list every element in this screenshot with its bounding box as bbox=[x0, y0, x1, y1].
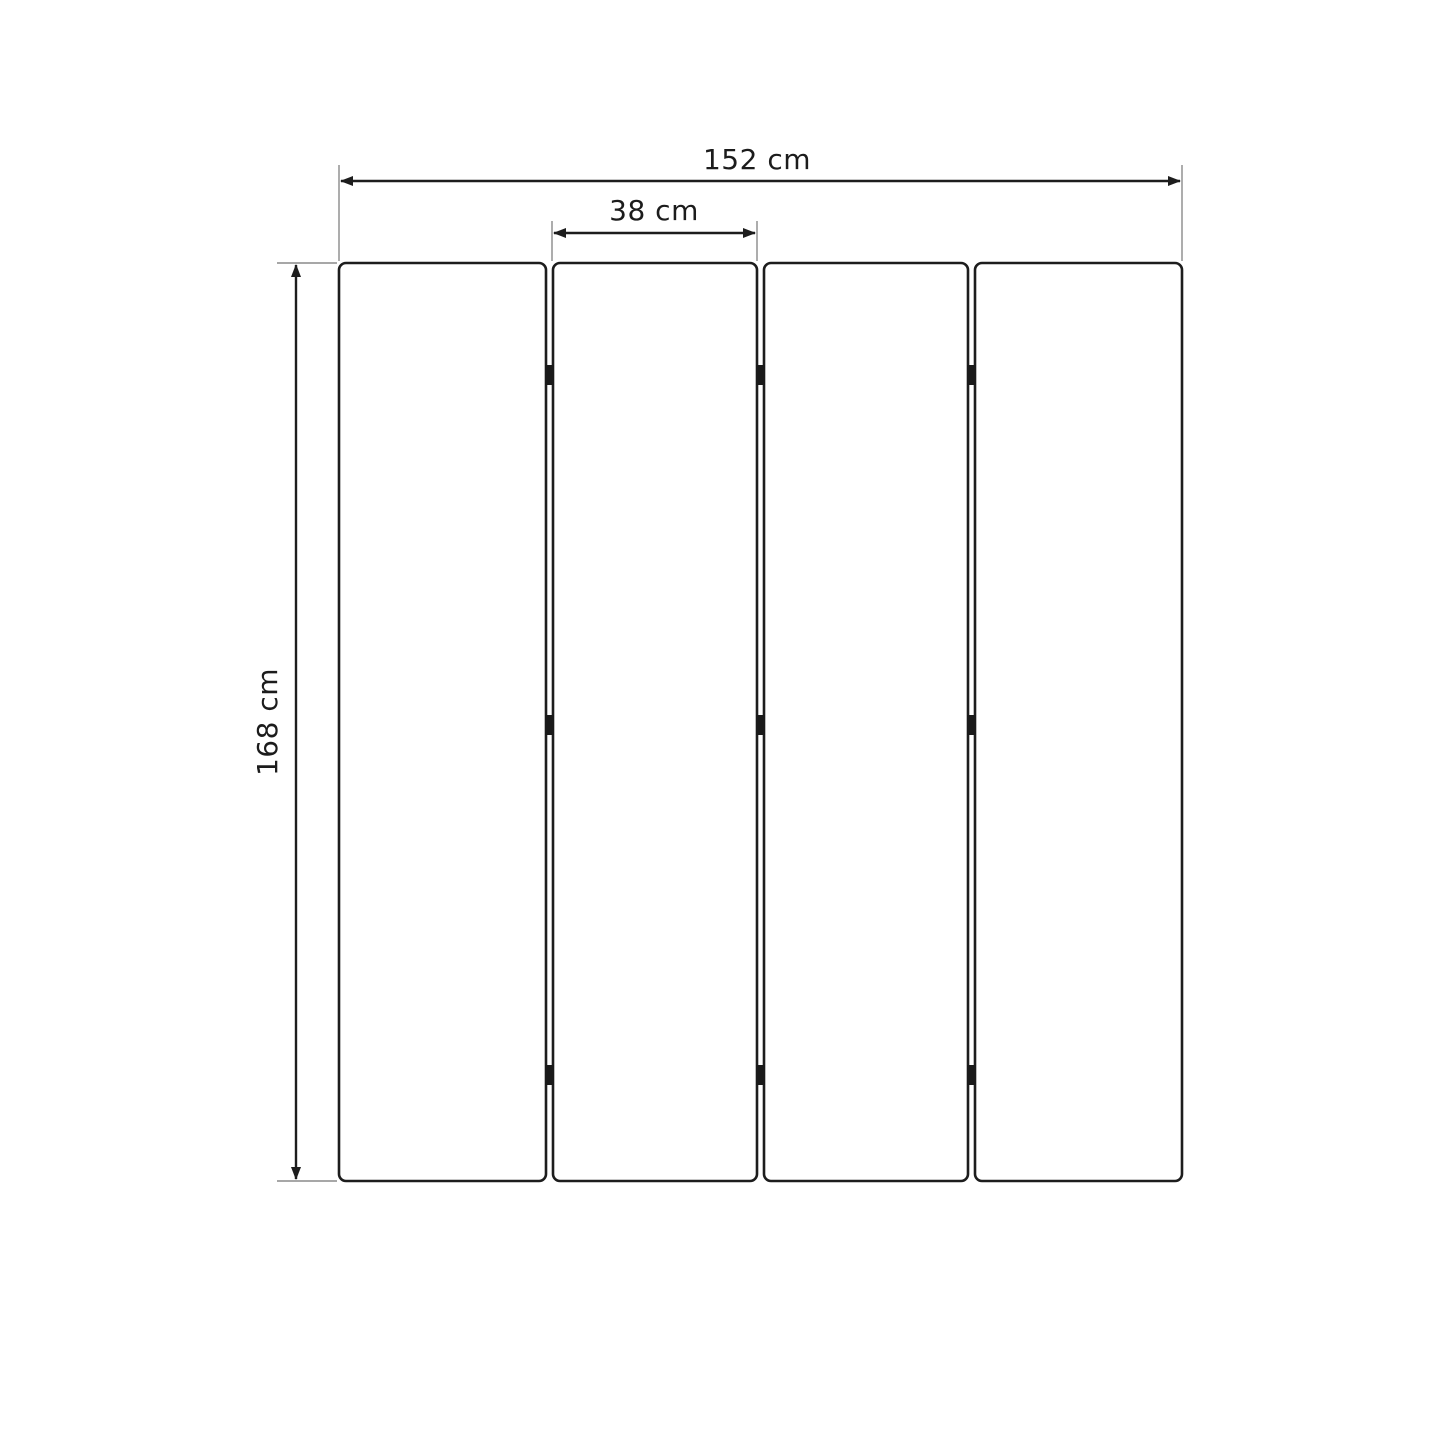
total-width-dimension: 152 cm bbox=[339, 143, 1182, 261]
panel-width-dimension: 38 cm bbox=[552, 194, 757, 261]
panel-2 bbox=[553, 263, 757, 1181]
hinge bbox=[756, 1065, 765, 1085]
hinge bbox=[967, 715, 976, 735]
hinge bbox=[756, 365, 765, 385]
hinge bbox=[967, 1065, 976, 1085]
hinge bbox=[545, 715, 554, 735]
hinge bbox=[967, 365, 976, 385]
height-dimension: 168 cm bbox=[251, 263, 337, 1181]
hinge bbox=[545, 365, 554, 385]
technical-drawing-canvas: 152 cm 38 cm 168 cm bbox=[0, 0, 1445, 1445]
panel-width-label: 38 cm bbox=[609, 194, 699, 227]
total-width-label: 152 cm bbox=[703, 143, 811, 176]
height-label: 168 cm bbox=[251, 668, 284, 776]
panel-dimension-diagram: 152 cm 38 cm 168 cm bbox=[0, 0, 1445, 1445]
hinge bbox=[756, 715, 765, 735]
panel-3 bbox=[764, 263, 968, 1181]
panel-4 bbox=[975, 263, 1182, 1181]
panel-1 bbox=[339, 263, 546, 1181]
hinge bbox=[545, 1065, 554, 1085]
